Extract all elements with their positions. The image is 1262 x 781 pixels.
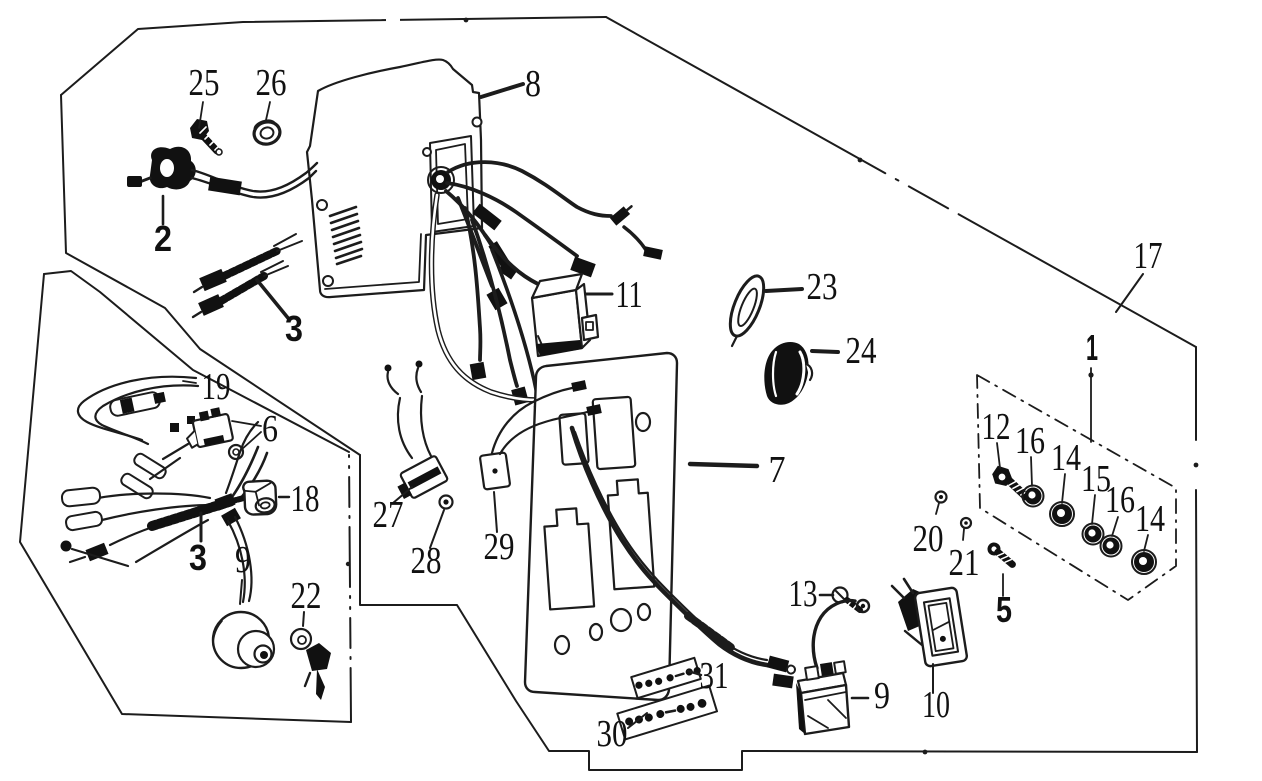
- svg-text:16: 16: [1015, 420, 1045, 462]
- svg-text:8: 8: [525, 63, 541, 105]
- svg-text:31: 31: [700, 655, 729, 697]
- svg-text:11: 11: [616, 274, 643, 316]
- svg-text:16: 16: [1105, 479, 1135, 521]
- svg-text:6: 6: [262, 408, 278, 450]
- svg-text:18: 18: [291, 478, 320, 520]
- svg-text:14: 14: [1051, 437, 1081, 479]
- svg-text:7: 7: [769, 449, 786, 491]
- svg-text:24: 24: [846, 330, 877, 372]
- svg-text:1: 1: [1086, 327, 1098, 368]
- svg-text:23: 23: [807, 266, 838, 308]
- svg-text:22: 22: [291, 575, 322, 617]
- svg-text:9: 9: [874, 675, 890, 717]
- svg-text:14: 14: [1135, 498, 1165, 540]
- svg-text:27: 27: [373, 494, 404, 536]
- svg-text:10: 10: [922, 684, 950, 726]
- svg-text:25: 25: [189, 62, 220, 104]
- svg-text:26: 26: [256, 62, 287, 104]
- svg-text:3: 3: [189, 537, 207, 578]
- svg-text:3: 3: [285, 308, 303, 349]
- svg-text:13: 13: [789, 573, 818, 615]
- svg-text:17: 17: [1134, 235, 1163, 277]
- svg-text:21: 21: [949, 542, 980, 584]
- svg-text:9: 9: [235, 539, 251, 581]
- svg-text:28: 28: [411, 540, 442, 582]
- svg-text:12: 12: [982, 406, 1011, 448]
- svg-text:30: 30: [597, 713, 628, 755]
- svg-text:20: 20: [913, 518, 944, 560]
- svg-text:2: 2: [154, 218, 172, 259]
- svg-text:19: 19: [202, 366, 231, 408]
- svg-text:29: 29: [484, 526, 515, 568]
- svg-text:5: 5: [996, 589, 1012, 630]
